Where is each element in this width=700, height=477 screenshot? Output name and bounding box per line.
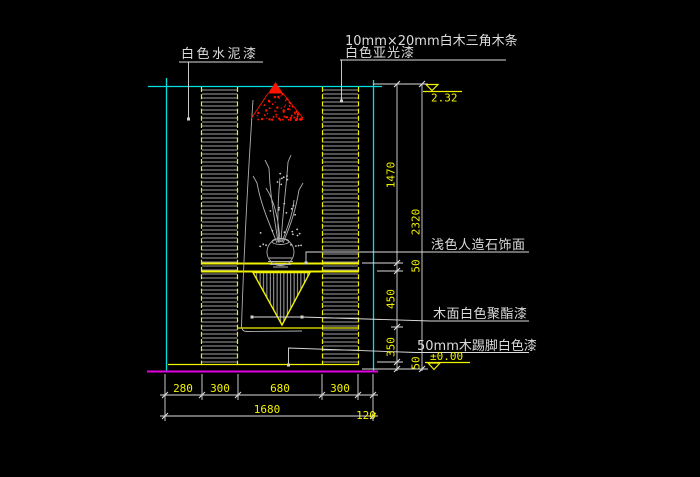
elevation-value-bottom: ±0.00 (430, 350, 463, 363)
right-column-hatch (323, 88, 359, 365)
cad-drawing-area[interactable]: 白色水泥漆 10mm×20mm白木三角木条 白色亚光漆 浅色人造石饰面 木面白色… (0, 0, 700, 477)
dim-350: 350 (385, 337, 398, 357)
dim-50-upper: 50 (410, 259, 423, 272)
right-column (323, 87, 359, 365)
label-cement-paint: 白色水泥漆 (181, 46, 259, 62)
dim-120: 120 (356, 409, 376, 422)
left-column-hatch (202, 88, 238, 365)
dim-1470: 1470 (385, 162, 398, 189)
dim-280: 280 (173, 382, 193, 395)
dim-2320: 2320 (410, 209, 423, 236)
dim-450: 450 (385, 289, 398, 309)
dim-300-left: 300 (210, 382, 230, 395)
left-column (202, 87, 238, 365)
dim-300-right: 300 (330, 382, 350, 395)
dim-50-lower: 50 (410, 356, 423, 369)
label-stone-finish: 浅色人造石饰面 (431, 237, 526, 253)
label-polyester-paint: 木面白色聚酯漆 (433, 306, 528, 322)
elevation-value-top: 2.32 (431, 92, 458, 105)
label-matte-paint: 白色亚光漆 (345, 45, 415, 61)
dim-1680: 1680 (254, 403, 281, 416)
dim-680: 680 (270, 382, 290, 395)
cad-canvas[interactable]: 白色水泥漆 10mm×20mm白木三角木条 白色亚光漆 浅色人造石饰面 木面白色… (0, 0, 700, 477)
